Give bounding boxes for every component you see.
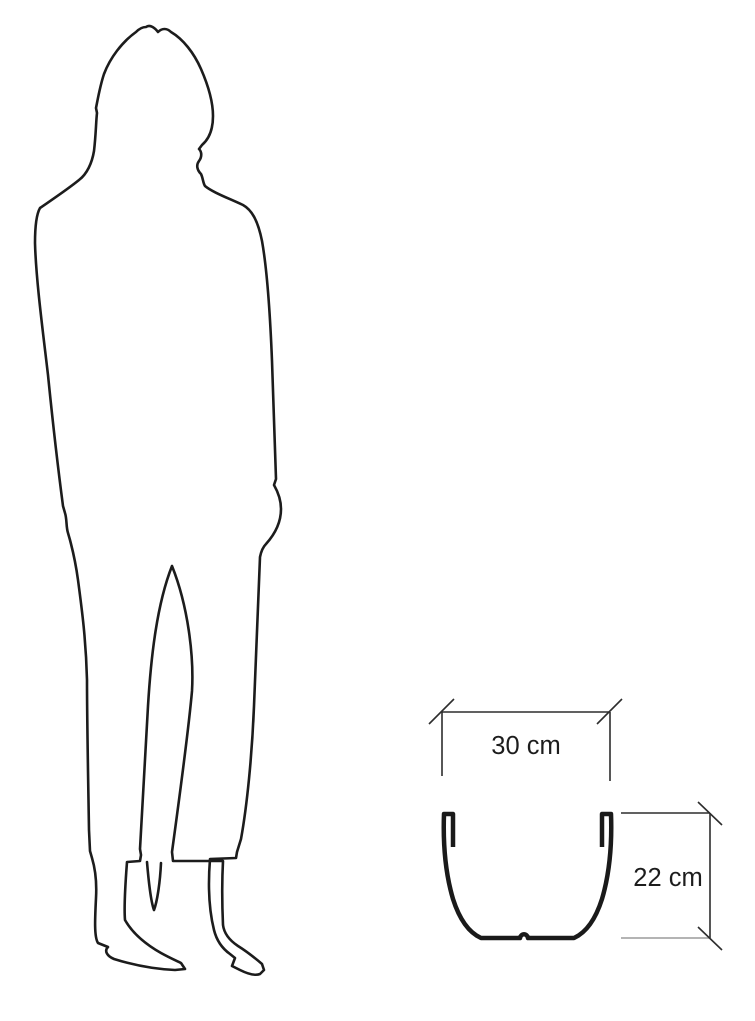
height-dimension-label: 22 cm xyxy=(633,864,702,892)
planter-cross-section xyxy=(444,814,611,938)
width-dimension-label: 30 cm xyxy=(491,732,560,760)
height-dimension: 22 cm xyxy=(621,802,722,950)
size-comparison-diagram: 30 cm 22 cm xyxy=(0,0,755,1021)
person-trouser-flap xyxy=(147,862,161,910)
width-dimension: 30 cm xyxy=(429,699,622,781)
person-outline xyxy=(35,26,281,975)
planter-outline xyxy=(444,814,611,938)
diagram-canvas: 30 cm 22 cm xyxy=(0,0,755,1021)
person-silhouette xyxy=(35,26,281,975)
